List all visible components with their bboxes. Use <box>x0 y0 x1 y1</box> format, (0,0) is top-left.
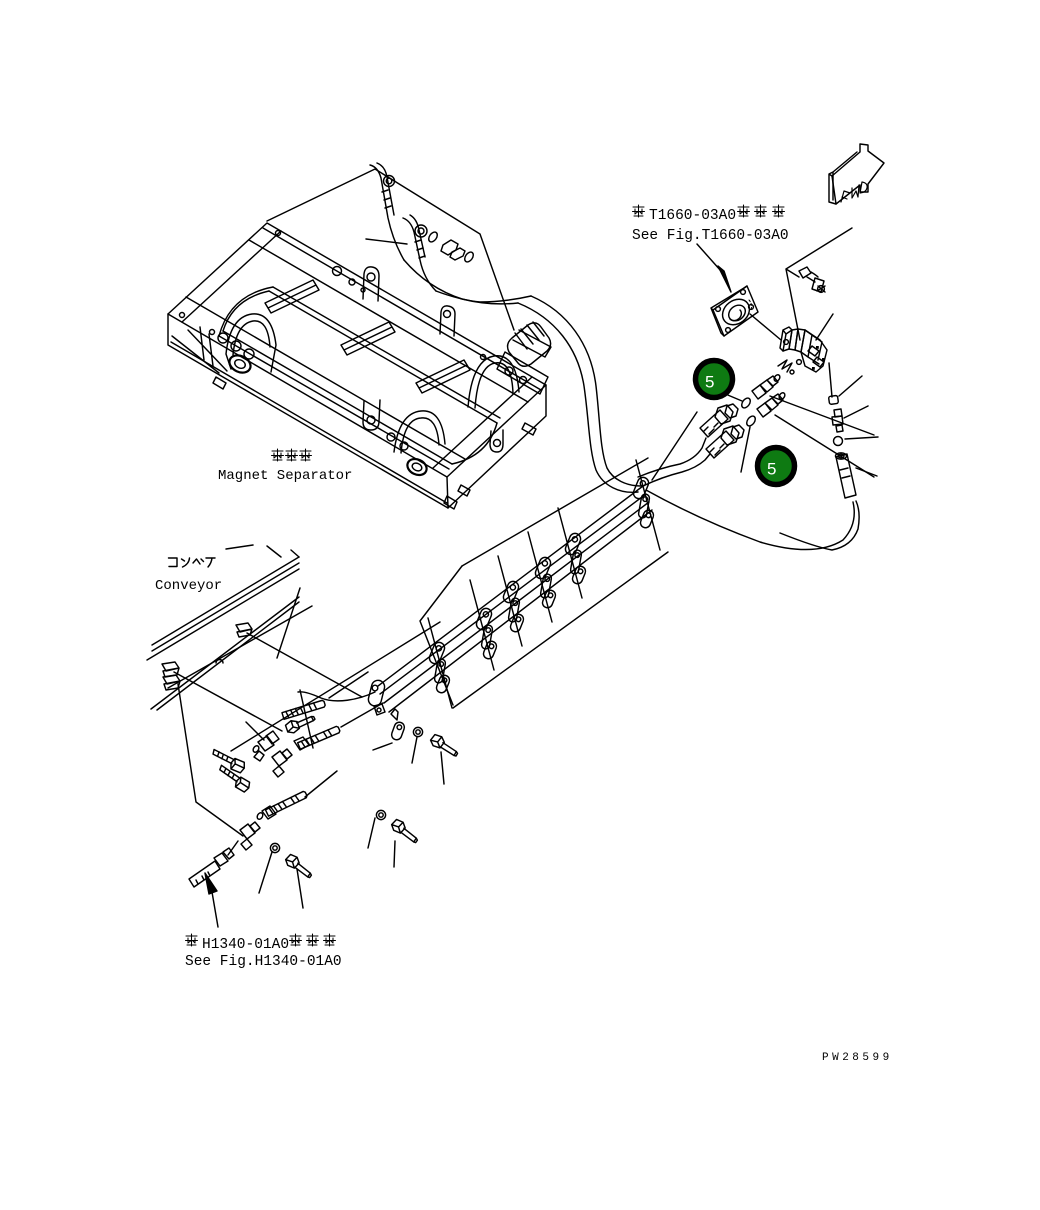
svg-text:T1660-03A0: T1660-03A0 <box>649 208 736 224</box>
svg-text:Conveyor: Conveyor <box>155 578 222 594</box>
svg-text:See Fig.T1660-03A0: See Fig.T1660-03A0 <box>632 228 789 244</box>
svg-text:See Fig.H1340-01A0: See Fig.H1340-01A0 <box>185 954 342 970</box>
svg-text:5: 5 <box>705 372 714 391</box>
svg-text:PW28599: PW28599 <box>822 1052 893 1064</box>
svg-text:H1340-01A0: H1340-01A0 <box>202 937 289 953</box>
svg-text:5: 5 <box>767 459 776 478</box>
svg-text:Magnet Separator: Magnet Separator <box>218 468 352 484</box>
